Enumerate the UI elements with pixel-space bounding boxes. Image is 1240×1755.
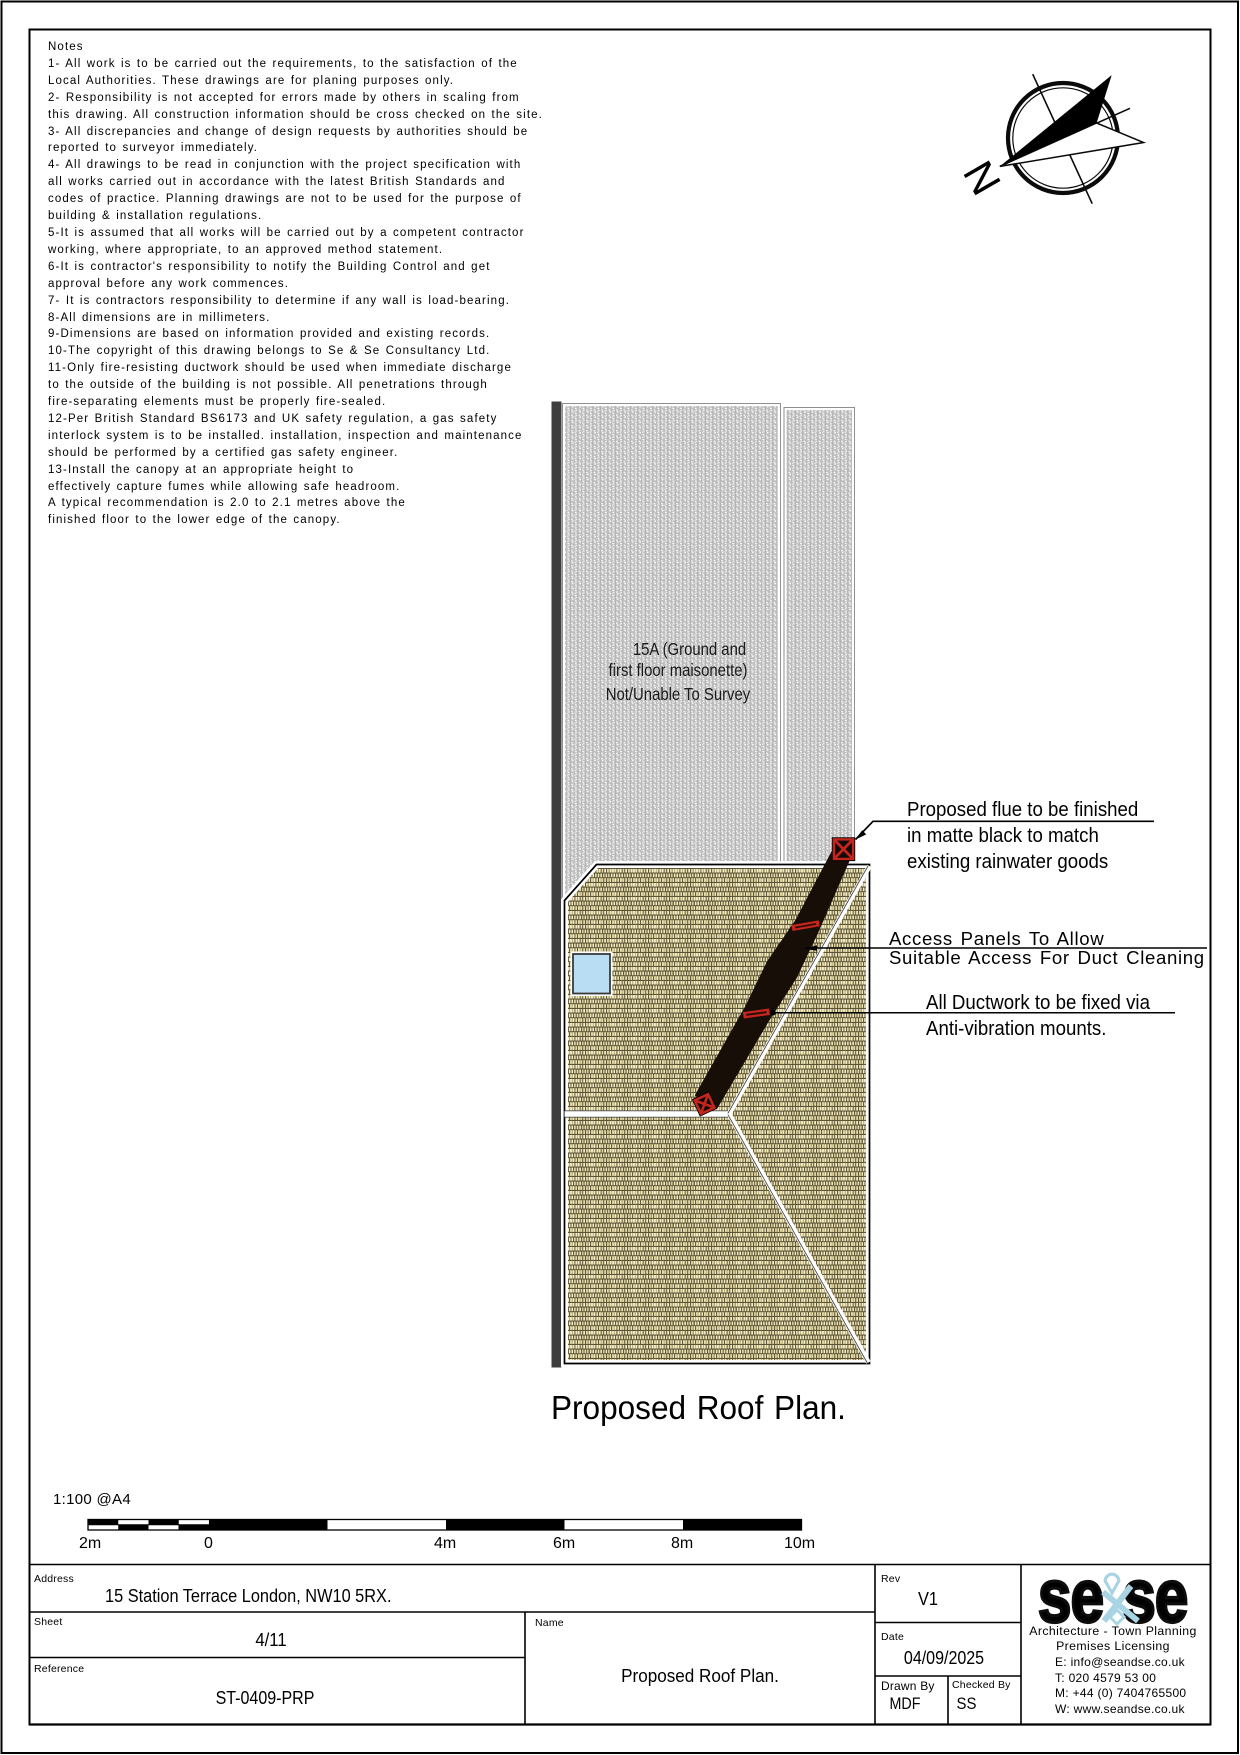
svg-text:N: N bbox=[954, 153, 1010, 203]
